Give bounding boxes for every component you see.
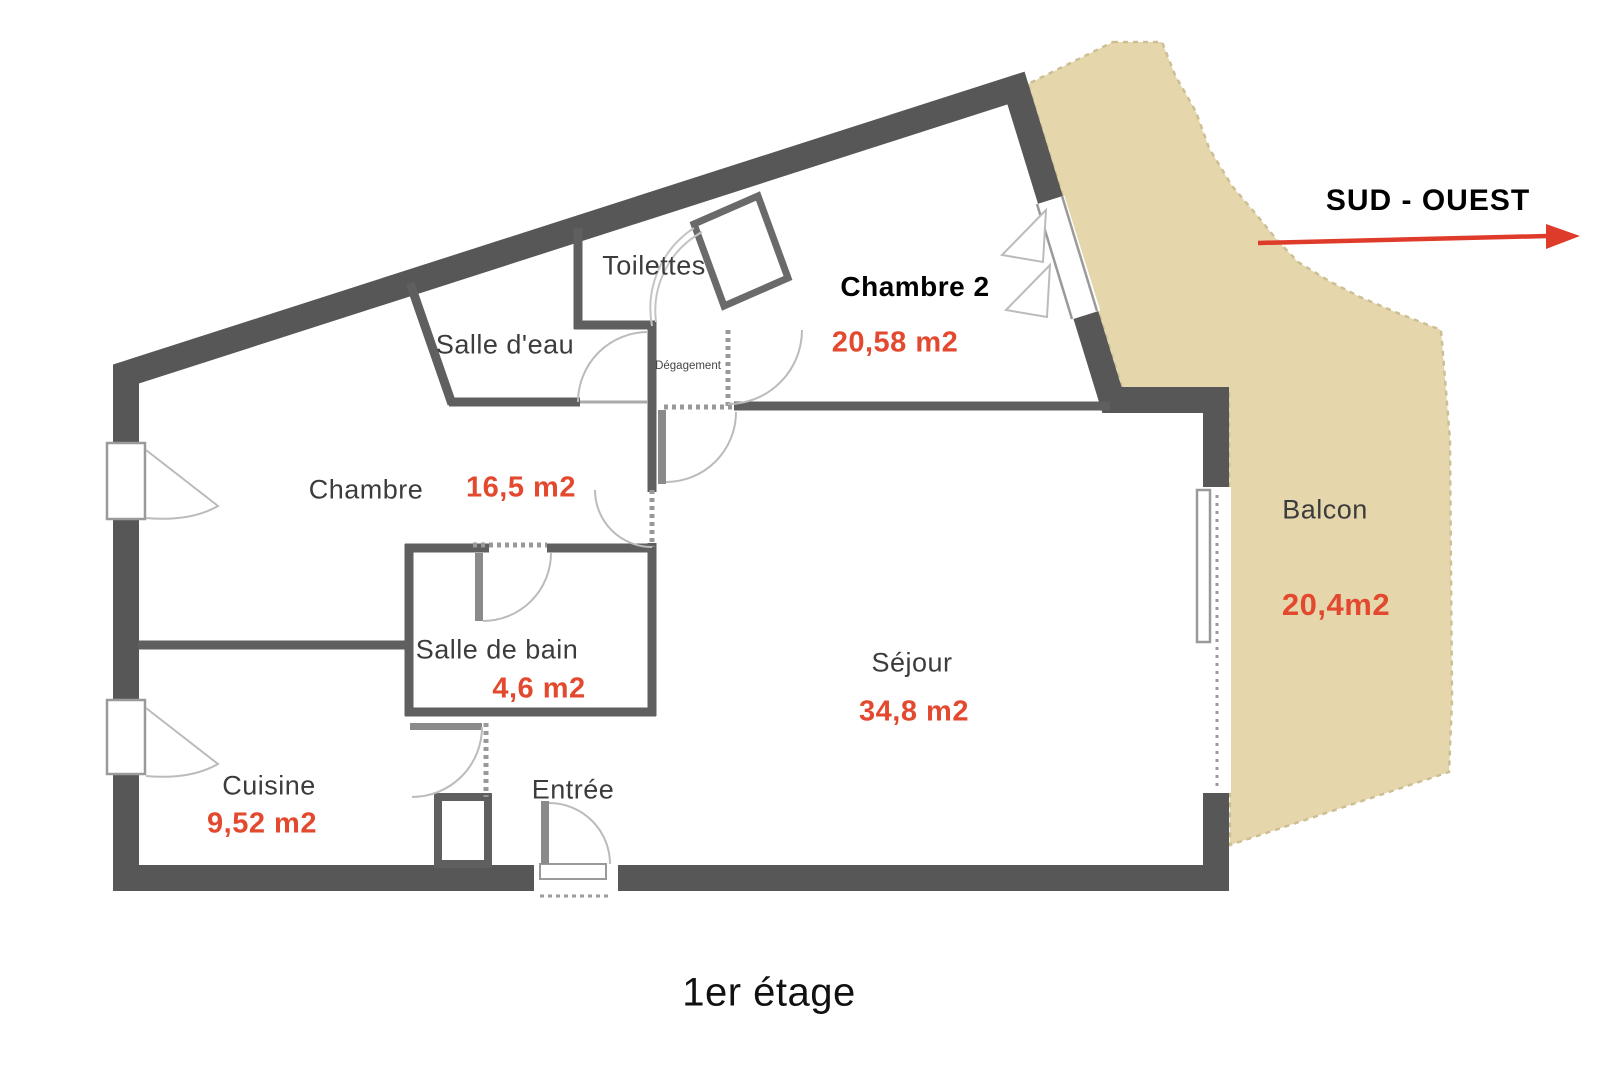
floor-plan-page: Toilettes Salle d'eau Chambre 2 20,58 m2… [0, 0, 1597, 1080]
label-sejour: Séjour [871, 648, 952, 679]
area-balcon: 20,4m2 [1282, 587, 1390, 623]
compass-arrow [1258, 224, 1580, 249]
area-cuisine: 9,52 m2 [207, 808, 317, 841]
area-chambre2: 20,58 m2 [832, 327, 959, 360]
entry-closet [438, 797, 488, 864]
label-entree: Entrée [532, 775, 615, 806]
label-salle-de-bain: Salle de bain [416, 635, 579, 666]
label-chambre: Chambre [309, 475, 424, 506]
floor-caption: 1er étage [682, 971, 856, 1016]
compass-label: SUD - OUEST [1326, 184, 1530, 218]
label-degagement: Dégagement [655, 360, 721, 372]
area-chambre: 16,5 m2 [466, 472, 576, 505]
area-sejour: 34,8 m2 [859, 696, 969, 729]
window-chambre [107, 443, 145, 519]
label-balcon: Balcon [1282, 495, 1368, 526]
entrance-door-leaf [541, 801, 549, 864]
sejour-window-pane [1197, 490, 1210, 642]
floor-plan-drawing [0, 0, 1597, 1080]
label-toilettes: Toilettes [602, 251, 706, 282]
entrance-threshold [540, 864, 606, 879]
label-chambre2: Chambre 2 [840, 271, 989, 303]
window-cuisine [107, 700, 145, 774]
label-cuisine: Cuisine [222, 771, 316, 802]
label-salle-deau: Salle d'eau [436, 330, 574, 361]
area-salle-de-bain: 4,6 m2 [492, 673, 585, 706]
